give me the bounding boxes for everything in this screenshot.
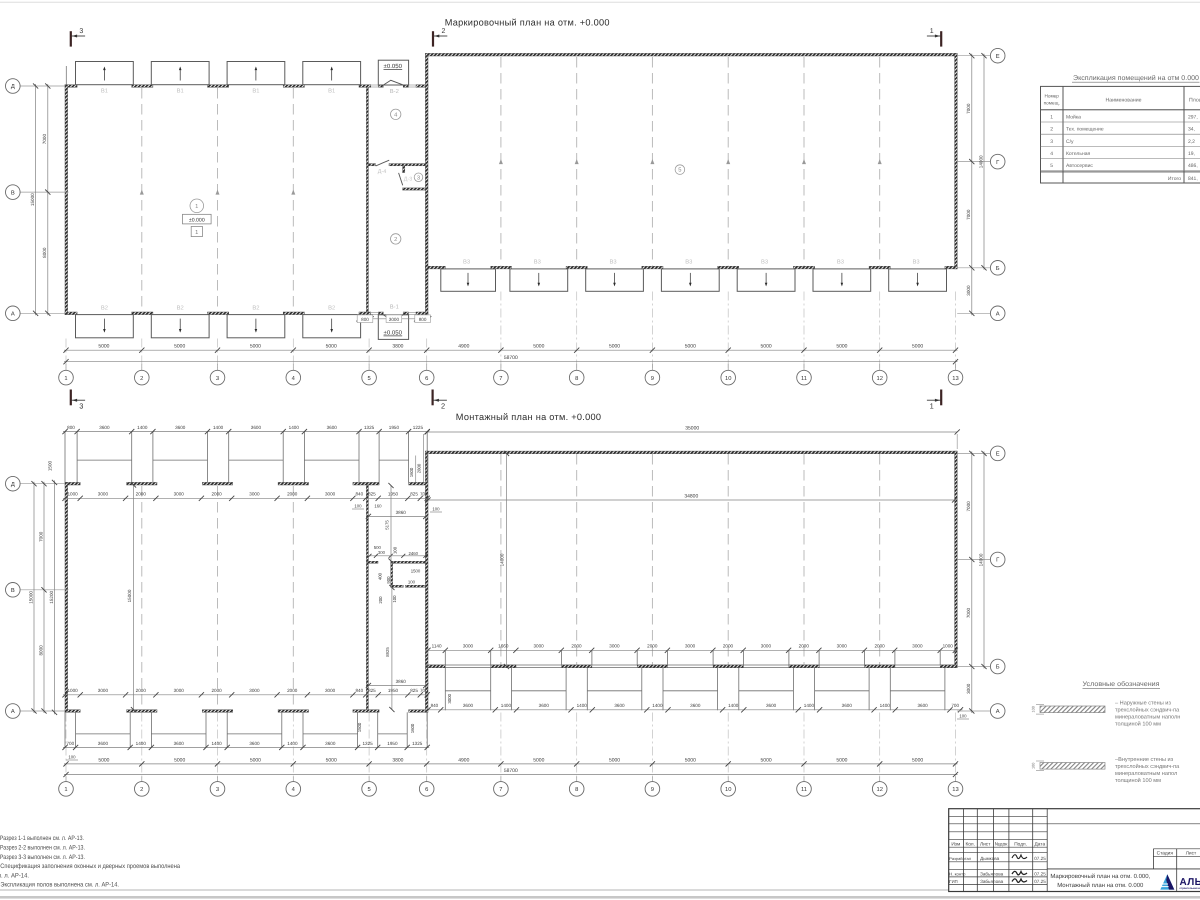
svg-text:Дата: Дата bbox=[1034, 841, 1045, 847]
svg-text:800: 800 bbox=[419, 317, 427, 322]
svg-text:19,: 19, bbox=[1188, 151, 1195, 157]
svg-text:3000: 3000 bbox=[966, 683, 971, 694]
svg-text:8000: 8000 bbox=[42, 247, 47, 258]
svg-text:35000: 35000 bbox=[685, 425, 699, 431]
svg-text:3000: 3000 bbox=[761, 644, 772, 649]
svg-text:1: 1 bbox=[1050, 114, 1053, 120]
svg-text:825: 825 bbox=[410, 688, 418, 693]
svg-text:2: 2 bbox=[442, 28, 446, 35]
svg-text:В2: В2 bbox=[252, 304, 259, 311]
svg-text:3000: 3000 bbox=[325, 688, 336, 693]
svg-text:3000: 3000 bbox=[174, 688, 185, 693]
svg-text:1400: 1400 bbox=[213, 425, 224, 430]
svg-text:5000: 5000 bbox=[174, 757, 185, 763]
svg-text:2000: 2000 bbox=[211, 688, 222, 693]
svg-text:3000: 3000 bbox=[249, 688, 260, 693]
svg-text:1950: 1950 bbox=[388, 688, 399, 693]
svg-text:1. Разрез 1-1 выполнен см. л.: 1. Разрез 1-1 выполнен см. л. АР-13. bbox=[0, 835, 84, 842]
svg-text:А: А bbox=[11, 709, 15, 715]
svg-text:1000: 1000 bbox=[943, 644, 954, 649]
svg-text:Разработал: Разработал bbox=[949, 856, 971, 861]
svg-text:±0.050: ±0.050 bbox=[384, 329, 403, 336]
svg-text:3000: 3000 bbox=[533, 644, 544, 649]
svg-text:Дымкова: Дымкова bbox=[980, 856, 1000, 861]
svg-text:3860: 3860 bbox=[396, 679, 407, 684]
svg-text:5000: 5000 bbox=[326, 757, 337, 763]
svg-text:Подп.: Подп. bbox=[1014, 841, 1027, 847]
svg-text:3000: 3000 bbox=[837, 644, 848, 649]
svg-text:34800: 34800 bbox=[684, 493, 698, 499]
svg-text:2: 2 bbox=[1050, 127, 1053, 133]
svg-text:Б: Б bbox=[996, 665, 1000, 671]
svg-text:13: 13 bbox=[952, 786, 958, 793]
svg-text:10: 10 bbox=[725, 375, 731, 382]
svg-text:3600: 3600 bbox=[99, 425, 110, 430]
svg-text:Итого: Итого bbox=[1168, 176, 1181, 182]
svg-text:С/у: С/у bbox=[1066, 139, 1074, 145]
svg-text:2000: 2000 bbox=[723, 644, 734, 649]
svg-text:3800: 3800 bbox=[392, 344, 403, 350]
svg-text:Д: Д bbox=[11, 84, 15, 90]
svg-text:3000: 3000 bbox=[447, 693, 452, 703]
svg-text:3000: 3000 bbox=[685, 644, 696, 649]
svg-text:4900: 4900 bbox=[458, 757, 469, 763]
svg-text:700: 700 bbox=[420, 688, 428, 693]
svg-text:3000: 3000 bbox=[98, 688, 109, 693]
svg-text:Монтажный план на отм. +0.000: Монтажный план на отм. +0.000 bbox=[456, 412, 601, 422]
svg-text:трехслойных сэндвич-па: трехслойных сэндвич-па bbox=[1115, 707, 1180, 714]
svg-text:100: 100 bbox=[959, 714, 967, 719]
svg-text:5000: 5000 bbox=[685, 757, 696, 763]
svg-text:Д: Д bbox=[11, 482, 15, 488]
svg-text:В1: В1 bbox=[328, 88, 335, 94]
svg-text:1140: 1140 bbox=[432, 644, 442, 649]
svg-text:160: 160 bbox=[374, 504, 382, 509]
svg-text:минераловатным напол: минераловатным напол bbox=[1115, 771, 1177, 777]
svg-text:3000: 3000 bbox=[609, 644, 620, 649]
svg-text:В3: В3 bbox=[685, 259, 692, 266]
svg-text:толщиной 100 мм: толщиной 100 мм bbox=[1115, 721, 1161, 728]
svg-text:№док: №док bbox=[995, 841, 1009, 847]
svg-text:5: 5 bbox=[1050, 163, 1053, 169]
svg-text:В: В bbox=[11, 190, 15, 196]
svg-text:минераловатным наполн: минераловатным наполн bbox=[1115, 715, 1180, 721]
svg-text:300: 300 bbox=[378, 550, 386, 555]
svg-text:100: 100 bbox=[393, 546, 398, 554]
svg-text:трехслойных сэндвич-па: трехслойных сэндвич-па bbox=[1115, 763, 1180, 770]
svg-text:840: 840 bbox=[431, 703, 439, 708]
svg-text:7000: 7000 bbox=[42, 134, 47, 145]
svg-text:840: 840 bbox=[355, 492, 363, 497]
svg-text:1950: 1950 bbox=[387, 741, 398, 746]
svg-text:825: 825 bbox=[410, 492, 418, 497]
svg-text:В1: В1 bbox=[101, 88, 108, 94]
svg-text:1325: 1325 bbox=[412, 741, 423, 746]
svg-text:1000: 1000 bbox=[67, 688, 78, 693]
svg-text:4. Спецификация заполнения око: 4. Спецификация заполнения оконных и две… bbox=[0, 863, 180, 870]
svg-text:3000: 3000 bbox=[325, 492, 336, 497]
svg-text:6: 6 bbox=[425, 375, 428, 382]
svg-text:Изм: Изм bbox=[951, 841, 960, 847]
svg-text:5: 5 bbox=[678, 168, 681, 174]
svg-text:3000: 3000 bbox=[249, 492, 260, 497]
svg-text:5000: 5000 bbox=[250, 757, 261, 763]
svg-text:Мойка: Мойка bbox=[1066, 114, 1081, 120]
svg-text:3000: 3000 bbox=[174, 492, 185, 497]
svg-text:Лист: Лист bbox=[980, 841, 991, 847]
svg-text:1400: 1400 bbox=[652, 703, 663, 708]
svg-text:6: 6 bbox=[425, 786, 428, 793]
svg-text:Котельная: Котельная bbox=[1066, 151, 1090, 157]
svg-text:1225: 1225 bbox=[413, 425, 424, 430]
svg-text:1: 1 bbox=[64, 376, 67, 382]
svg-text:В3: В3 bbox=[913, 259, 920, 266]
svg-text:В3: В3 bbox=[534, 259, 541, 266]
svg-text:9: 9 bbox=[651, 375, 654, 382]
svg-text:2000: 2000 bbox=[799, 644, 810, 649]
svg-text:Площ: Площ bbox=[1189, 98, 1200, 104]
svg-text:1400: 1400 bbox=[211, 741, 222, 746]
svg-text:3600: 3600 bbox=[766, 703, 777, 708]
svg-text:3600: 3600 bbox=[917, 703, 928, 708]
svg-text:12: 12 bbox=[876, 786, 882, 793]
svg-text:4900: 4900 bbox=[458, 344, 469, 350]
svg-text:помещ.: помещ. bbox=[1044, 100, 1060, 105]
svg-text:486,: 486, bbox=[1188, 163, 1198, 169]
svg-text:2. Разрез 2-2 выполнен см. л.: 2. Разрез 2-2 выполнен см. л. АР-13. bbox=[0, 845, 85, 852]
svg-text:3: 3 bbox=[216, 786, 219, 793]
svg-text:В3: В3 bbox=[463, 259, 470, 266]
svg-text:2000: 2000 bbox=[136, 492, 147, 497]
svg-text:900: 900 bbox=[386, 576, 391, 584]
svg-text:5000: 5000 bbox=[836, 344, 847, 350]
svg-text:Н. контр: Н. контр bbox=[949, 871, 966, 876]
svg-text:3600: 3600 bbox=[463, 703, 474, 708]
svg-text:13: 13 bbox=[952, 375, 958, 382]
svg-text:5000: 5000 bbox=[761, 344, 772, 350]
svg-text:1500: 1500 bbox=[411, 569, 421, 574]
svg-text:3000: 3000 bbox=[98, 492, 109, 497]
svg-text:2000: 2000 bbox=[571, 644, 582, 649]
svg-text:100: 100 bbox=[1032, 706, 1036, 712]
svg-text:7000: 7000 bbox=[966, 607, 971, 618]
svg-text:Маркировочный план на отм. +0.: Маркировочный план на отм. +0.000 bbox=[445, 17, 610, 27]
svg-text:3600: 3600 bbox=[327, 425, 338, 430]
svg-text:1950: 1950 bbox=[388, 492, 399, 497]
svg-text:2000: 2000 bbox=[211, 492, 222, 497]
svg-text:Д-4: Д-4 bbox=[378, 169, 386, 175]
svg-text:1: 1 bbox=[64, 787, 67, 793]
svg-text:строительная компания: строительная компания bbox=[1180, 887, 1200, 890]
svg-text:– Наружные стены из: – Наружные стены из bbox=[1115, 701, 1171, 707]
svg-text:Тех. помещение: Тех. помещение bbox=[1066, 127, 1104, 133]
svg-text:3000: 3000 bbox=[463, 644, 474, 649]
svg-text:3600: 3600 bbox=[690, 703, 701, 708]
svg-text:15000: 15000 bbox=[127, 589, 132, 602]
svg-text:1400: 1400 bbox=[136, 741, 147, 746]
svg-text:3: 3 bbox=[79, 402, 83, 411]
svg-text:8925: 8925 bbox=[385, 647, 390, 657]
svg-text:5: 5 bbox=[367, 787, 370, 793]
svg-text:100: 100 bbox=[408, 580, 416, 585]
svg-text:100: 100 bbox=[68, 755, 76, 760]
svg-text:58700: 58700 bbox=[504, 355, 518, 361]
svg-text:1: 1 bbox=[930, 402, 934, 411]
svg-text:Стадия: Стадия bbox=[1157, 850, 1174, 856]
svg-text:9: 9 bbox=[651, 786, 654, 793]
svg-text:В-1: В-1 bbox=[390, 304, 399, 310]
svg-text:3600: 3600 bbox=[249, 741, 260, 746]
svg-text:3: 3 bbox=[1050, 139, 1053, 145]
svg-text:1600: 1600 bbox=[410, 723, 415, 733]
svg-text:5000: 5000 bbox=[912, 757, 923, 763]
svg-text:5000: 5000 bbox=[912, 344, 923, 350]
svg-text:В1: В1 bbox=[177, 88, 184, 94]
svg-text:В3: В3 bbox=[761, 259, 768, 266]
svg-text:2,2: 2,2 bbox=[1188, 139, 1195, 145]
svg-text:Маркировочный план на отм. 0.0: Маркировочный план на отм. 0.000, bbox=[1050, 873, 1150, 880]
svg-text:100: 100 bbox=[354, 504, 362, 509]
svg-text:3600: 3600 bbox=[251, 425, 262, 430]
svg-text:7: 7 bbox=[499, 787, 502, 793]
svg-text:1325: 1325 bbox=[362, 741, 373, 746]
svg-text:5000: 5000 bbox=[98, 344, 109, 350]
svg-text:1500: 1500 bbox=[48, 460, 53, 471]
svg-text:7000: 7000 bbox=[966, 103, 971, 114]
svg-text:200: 200 bbox=[378, 596, 383, 604]
svg-text:3: 3 bbox=[417, 174, 420, 181]
svg-text:Условные обозначения: Условные обозначения bbox=[1083, 681, 1160, 688]
svg-text:Б: Б bbox=[996, 266, 1000, 272]
svg-text:5000: 5000 bbox=[836, 757, 847, 763]
svg-text:Кол.: Кол. bbox=[965, 841, 975, 847]
svg-text:Забьялова: Забьялова bbox=[980, 871, 1004, 876]
svg-text:5000: 5000 bbox=[609, 344, 620, 350]
svg-text:2: 2 bbox=[441, 402, 445, 411]
svg-text:825: 825 bbox=[368, 492, 376, 497]
svg-text:5000: 5000 bbox=[609, 757, 620, 763]
svg-text:3. Разрез 3-3 выполнен см. л.: 3. Разрез 3-3 выполнен см. л. АР-13. bbox=[0, 854, 85, 861]
svg-text:В3: В3 bbox=[837, 259, 844, 266]
svg-text:8000: 8000 bbox=[38, 645, 43, 656]
svg-text:7000: 7000 bbox=[966, 501, 971, 512]
svg-text:7000: 7000 bbox=[38, 531, 43, 542]
svg-text:3: 3 bbox=[216, 375, 219, 382]
svg-text:3800: 3800 bbox=[392, 757, 403, 763]
svg-text:1400: 1400 bbox=[804, 703, 815, 708]
svg-text:Е: Е bbox=[996, 452, 1000, 458]
svg-text:5000: 5000 bbox=[685, 344, 696, 350]
svg-text:5000: 5000 bbox=[98, 757, 109, 763]
svg-text:1400: 1400 bbox=[577, 703, 588, 708]
svg-text:В-2: В-2 bbox=[390, 88, 399, 95]
svg-text:Лист: Лист bbox=[1186, 850, 1197, 856]
svg-text:1600: 1600 bbox=[409, 467, 414, 477]
svg-text:3600: 3600 bbox=[614, 703, 625, 708]
svg-text:толщиной 100 мм: толщиной 100 мм bbox=[1115, 777, 1161, 784]
svg-text:Наименование: Наименование bbox=[1106, 98, 1142, 104]
svg-text:3860: 3860 bbox=[396, 510, 407, 515]
svg-text:11: 11 bbox=[801, 787, 807, 793]
svg-text:07.25: 07.25 bbox=[1034, 856, 1046, 861]
svg-text:7: 7 bbox=[499, 376, 502, 382]
svg-text:3600: 3600 bbox=[174, 741, 185, 746]
svg-text:100: 100 bbox=[432, 507, 440, 512]
svg-text:В2: В2 bbox=[101, 304, 108, 311]
svg-text:3600: 3600 bbox=[539, 703, 550, 708]
svg-text:2000: 2000 bbox=[136, 688, 147, 693]
svg-text:2: 2 bbox=[394, 236, 397, 243]
svg-text:1325: 1325 bbox=[364, 425, 375, 430]
svg-text:Е: Е bbox=[996, 54, 1000, 60]
svg-text:ГИП: ГИП bbox=[949, 879, 957, 884]
svg-text:58700: 58700 bbox=[504, 768, 518, 774]
svg-text:1400: 1400 bbox=[287, 741, 298, 746]
svg-text:15200: 15200 bbox=[49, 590, 54, 603]
svg-text:1400: 1400 bbox=[289, 425, 300, 430]
svg-text:5000: 5000 bbox=[533, 757, 544, 763]
svg-text:1400: 1400 bbox=[137, 425, 148, 430]
svg-text:Д-3: Д-3 bbox=[404, 177, 412, 183]
svg-text:В2: В2 bbox=[177, 304, 184, 311]
svg-text:15000: 15000 bbox=[30, 193, 35, 206]
svg-text:Номер: Номер bbox=[1044, 94, 1059, 99]
svg-text:12: 12 bbox=[876, 375, 882, 382]
svg-text:10: 10 bbox=[725, 786, 731, 793]
svg-text:840: 840 bbox=[355, 688, 363, 693]
svg-text:В2: В2 bbox=[328, 304, 335, 311]
svg-text:4: 4 bbox=[1050, 151, 1053, 157]
svg-text:825: 825 bbox=[368, 688, 376, 693]
svg-text:800: 800 bbox=[67, 425, 75, 430]
svg-text:5000: 5000 bbox=[174, 344, 185, 350]
svg-text:2000: 2000 bbox=[287, 688, 298, 693]
svg-text:07.25: 07.25 bbox=[1034, 879, 1046, 884]
svg-text:11: 11 bbox=[801, 376, 807, 382]
svg-text:5000: 5000 bbox=[250, 344, 261, 350]
svg-text:2000: 2000 bbox=[874, 644, 885, 649]
svg-text:1400: 1400 bbox=[880, 703, 891, 708]
svg-text:5: 5 bbox=[367, 376, 370, 382]
svg-text:1000: 1000 bbox=[67, 492, 78, 497]
svg-text:Забьялова: Забьялова bbox=[980, 879, 1004, 884]
svg-text:Экспликация помещений на отм 0: Экспликация помещений на отм 0.000 bbox=[1073, 74, 1199, 82]
svg-text:14000: 14000 bbox=[500, 553, 505, 566]
svg-text:8: 8 bbox=[575, 375, 578, 382]
svg-text:А: А bbox=[996, 312, 1000, 318]
svg-text:7000: 7000 bbox=[966, 209, 971, 220]
svg-text:1400: 1400 bbox=[501, 703, 512, 708]
svg-text:5175: 5175 bbox=[384, 520, 389, 530]
svg-text:07.25: 07.25 bbox=[1034, 871, 1046, 876]
svg-text:700: 700 bbox=[951, 703, 959, 708]
svg-text:2: 2 bbox=[140, 375, 143, 382]
svg-text:В: В bbox=[11, 588, 15, 594]
svg-text:±0.050: ±0.050 bbox=[384, 63, 403, 70]
svg-text:841,: 841, bbox=[1188, 176, 1198, 182]
svg-text:±0.000: ±0.000 bbox=[189, 218, 205, 224]
svg-text:100: 100 bbox=[1032, 763, 1036, 769]
svg-text:3600: 3600 bbox=[98, 741, 109, 746]
svg-text:297,: 297, bbox=[1188, 114, 1198, 120]
svg-text:1: 1 bbox=[195, 204, 198, 210]
svg-text:–Внутренние стены из: –Внутренние стены из bbox=[1115, 757, 1174, 763]
svg-text:8: 8 bbox=[575, 786, 578, 793]
svg-text:14000: 14000 bbox=[978, 553, 983, 566]
svg-text:700: 700 bbox=[420, 492, 428, 497]
svg-text:5000: 5000 bbox=[533, 344, 544, 350]
svg-text:2000: 2000 bbox=[647, 644, 658, 649]
svg-text:1660: 1660 bbox=[498, 644, 509, 649]
svg-text:100: 100 bbox=[392, 595, 397, 603]
svg-text:2460: 2460 bbox=[409, 551, 419, 556]
svg-text:см. л. АР-14.: см. л. АР-14. bbox=[0, 873, 29, 880]
svg-text:5000: 5000 bbox=[761, 757, 772, 763]
svg-text:3600: 3600 bbox=[325, 741, 336, 746]
svg-text:3: 3 bbox=[79, 28, 83, 35]
svg-text:В3: В3 bbox=[609, 259, 616, 266]
svg-text:2800: 2800 bbox=[417, 463, 422, 473]
svg-text:800: 800 bbox=[361, 317, 369, 322]
svg-text:34,: 34, bbox=[1188, 127, 1195, 133]
svg-text:700: 700 bbox=[66, 741, 74, 746]
svg-text:2: 2 bbox=[140, 786, 143, 793]
svg-text:3000: 3000 bbox=[966, 285, 971, 296]
svg-text:5. Экспликация полов выполнена: 5. Экспликация полов выполнена см. л. АР… bbox=[0, 882, 119, 889]
svg-text:3600: 3600 bbox=[175, 425, 186, 430]
svg-text:3000: 3000 bbox=[389, 317, 400, 322]
svg-text:400: 400 bbox=[378, 572, 383, 580]
svg-text:15000: 15000 bbox=[28, 591, 33, 604]
svg-text:1400: 1400 bbox=[728, 703, 739, 708]
svg-text:2000: 2000 bbox=[287, 492, 298, 497]
svg-text:А: А bbox=[11, 312, 15, 318]
svg-text:1950: 1950 bbox=[389, 425, 400, 430]
svg-text:3000: 3000 bbox=[912, 644, 923, 649]
svg-text:5000: 5000 bbox=[326, 344, 337, 350]
svg-text:1: 1 bbox=[195, 230, 198, 236]
svg-text:14000: 14000 bbox=[978, 155, 983, 168]
svg-text:В1: В1 bbox=[252, 88, 259, 94]
svg-text:3600: 3600 bbox=[842, 703, 853, 708]
svg-text:Автосервис: Автосервис bbox=[1066, 163, 1093, 169]
svg-text:А: А bbox=[996, 709, 1000, 715]
svg-text:Монтажный план на отм. 0.000: Монтажный план на отм. 0.000 bbox=[1057, 882, 1144, 889]
svg-text:1500: 1500 bbox=[357, 722, 362, 732]
svg-text:1: 1 bbox=[930, 28, 934, 35]
